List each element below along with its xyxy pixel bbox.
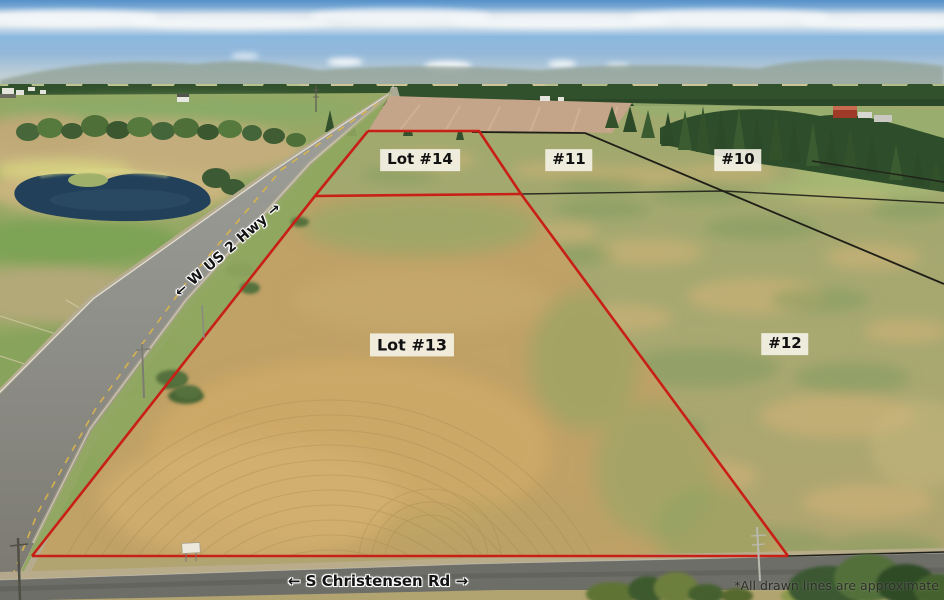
lot-13-label: Lot #13 xyxy=(370,333,454,356)
lot-10-label: #10 xyxy=(714,149,761,171)
lot-14-label: Lot #14 xyxy=(380,149,460,171)
lot-12-label: #12 xyxy=(761,333,808,355)
lot-11-label: #11 xyxy=(545,149,592,171)
disclaimer-text: *All drawn lines are approximate xyxy=(734,578,939,593)
aerial-photo-lot-map: Lot #14 #11 #10 Lot #13 #12 ← W US 2 Hwy… xyxy=(0,0,944,600)
cross-road-name-label: ← S Christensen Rd → xyxy=(288,572,468,590)
sky xyxy=(0,0,944,92)
aerial-photo xyxy=(0,0,944,600)
